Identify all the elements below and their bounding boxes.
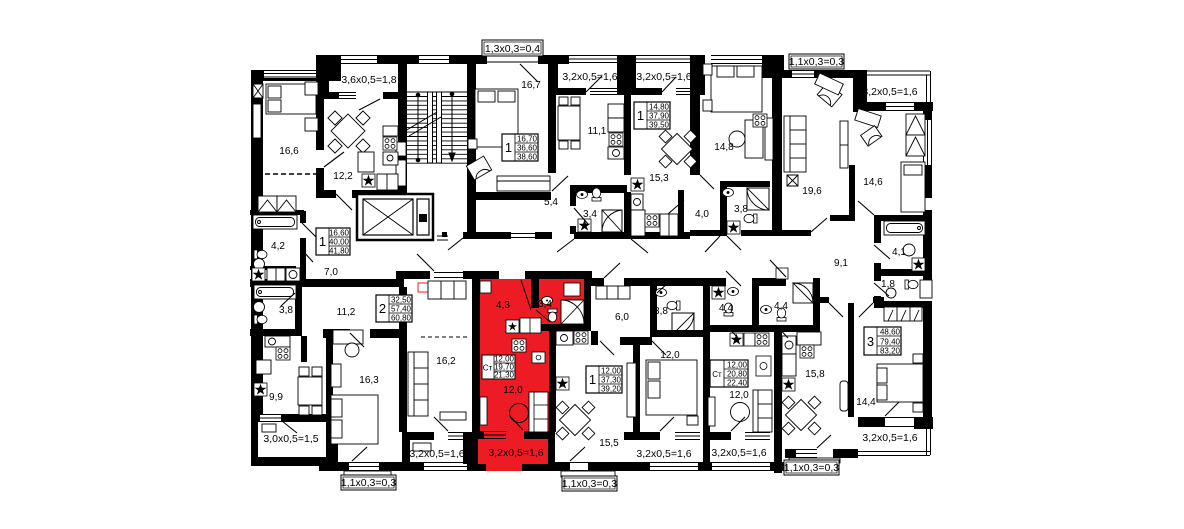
svg-text:38,60: 38,60 (517, 153, 538, 162)
svg-text:79,40: 79,40 (880, 338, 901, 347)
svg-text:4,3: 4,3 (496, 300, 510, 311)
svg-text:1,1x0,3=0,3: 1,1x0,3=0,3 (789, 56, 844, 68)
svg-text:32,50: 32,50 (391, 296, 412, 305)
svg-text:7,0: 7,0 (324, 267, 338, 278)
svg-text:4,2: 4,2 (271, 241, 285, 252)
svg-text:3,2x0,5=1,6: 3,2x0,5=1,6 (862, 432, 917, 444)
svg-text:4,4: 4,4 (719, 303, 733, 314)
svg-text:14,80: 14,80 (649, 103, 670, 112)
svg-text:16,6: 16,6 (279, 146, 299, 157)
svg-text:37,30: 37,30 (601, 376, 622, 385)
svg-text:39,50: 39,50 (649, 121, 670, 130)
svg-text:15,8: 15,8 (805, 369, 825, 380)
svg-text:39,20: 39,20 (601, 385, 622, 394)
svg-text:1: 1 (319, 234, 326, 249)
svg-text:40,00: 40,00 (329, 238, 350, 247)
svg-text:4,4: 4,4 (774, 301, 788, 312)
svg-text:36,60: 36,60 (517, 144, 538, 153)
svg-text:57,40: 57,40 (391, 305, 412, 314)
svg-text:Ст: Ст (712, 370, 722, 379)
svg-text:12,2: 12,2 (333, 171, 353, 182)
svg-text:1,1x0,3=0,3: 1,1x0,3=0,3 (784, 462, 839, 474)
svg-text:20,80: 20,80 (727, 370, 748, 379)
svg-text:3,2x0,5=1,6: 3,2x0,5=1,6 (862, 86, 917, 98)
svg-text:11,1: 11,1 (588, 126, 607, 137)
svg-text:4,1: 4,1 (892, 247, 906, 258)
svg-text:12,0: 12,0 (660, 350, 680, 361)
svg-text:1,1x0,3=0,3: 1,1x0,3=0,3 (562, 478, 617, 490)
svg-text:16,7: 16,7 (521, 80, 541, 91)
svg-text:1: 1 (505, 140, 512, 155)
svg-text:4,0: 4,0 (695, 209, 709, 220)
svg-text:37,90: 37,90 (649, 112, 670, 121)
svg-text:3,8: 3,8 (654, 306, 668, 317)
svg-text:3,6x0,5=1,8: 3,6x0,5=1,8 (341, 74, 396, 86)
svg-text:16,2: 16,2 (436, 356, 456, 367)
svg-text:Ст: Ст (483, 364, 493, 373)
svg-text:3,8: 3,8 (734, 204, 748, 215)
svg-text:16,60: 16,60 (329, 229, 350, 238)
svg-text:48,60: 48,60 (880, 328, 901, 337)
svg-text:3,4: 3,4 (538, 299, 552, 310)
svg-text:3,8: 3,8 (279, 305, 293, 316)
svg-text:41,80: 41,80 (329, 247, 350, 256)
svg-text:15,3: 15,3 (649, 173, 669, 184)
svg-text:14,6: 14,6 (863, 177, 883, 188)
svg-text:60,80: 60,80 (391, 314, 412, 323)
svg-text:16,70: 16,70 (517, 135, 538, 144)
svg-text:3,2x0,5=1,6: 3,2x0,5=1,6 (488, 447, 543, 459)
svg-text:15,5: 15,5 (599, 438, 619, 449)
svg-text:22,40: 22,40 (727, 379, 748, 388)
svg-text:1: 1 (589, 372, 596, 387)
svg-text:9,1: 9,1 (834, 258, 848, 269)
svg-text:2: 2 (379, 301, 386, 316)
svg-text:14,4: 14,4 (856, 397, 876, 408)
svg-text:83,20: 83,20 (880, 347, 901, 356)
svg-text:14,8: 14,8 (714, 142, 734, 153)
svg-text:3,4: 3,4 (583, 209, 597, 220)
svg-text:11,2: 11,2 (337, 307, 356, 318)
svg-text:1,1x0,3=0,3: 1,1x0,3=0,3 (341, 477, 396, 489)
svg-text:3,2x0,5=1,6: 3,2x0,5=1,6 (636, 448, 691, 460)
svg-text:12,0: 12,0 (503, 385, 523, 396)
svg-text:19,6: 19,6 (802, 186, 822, 197)
svg-text:5,4: 5,4 (544, 197, 558, 208)
svg-text:3,0x0,5=1,5: 3,0x0,5=1,5 (263, 433, 318, 445)
svg-text:3,2x0,5=1,6: 3,2x0,5=1,6 (409, 448, 464, 460)
svg-text:9,9: 9,9 (269, 392, 283, 403)
svg-text:1,8: 1,8 (881, 279, 895, 290)
svg-text:1: 1 (637, 108, 644, 123)
svg-text:21,30: 21,30 (494, 371, 515, 380)
svg-text:3: 3 (867, 334, 874, 349)
svg-text:3,2x0,5=1,6: 3,2x0,5=1,6 (562, 71, 617, 83)
svg-text:3,2x0,5=1,6: 3,2x0,5=1,6 (711, 447, 766, 459)
svg-text:3,2x0,5=1,6: 3,2x0,5=1,6 (636, 71, 691, 83)
svg-text:12,00: 12,00 (727, 361, 748, 370)
svg-text:1,3x0,3=0,4: 1,3x0,3=0,4 (485, 43, 540, 55)
svg-text:12,0: 12,0 (729, 390, 749, 401)
svg-text:16,3: 16,3 (359, 375, 379, 386)
svg-text:12,00: 12,00 (601, 367, 622, 376)
svg-text:6,0: 6,0 (615, 312, 629, 323)
